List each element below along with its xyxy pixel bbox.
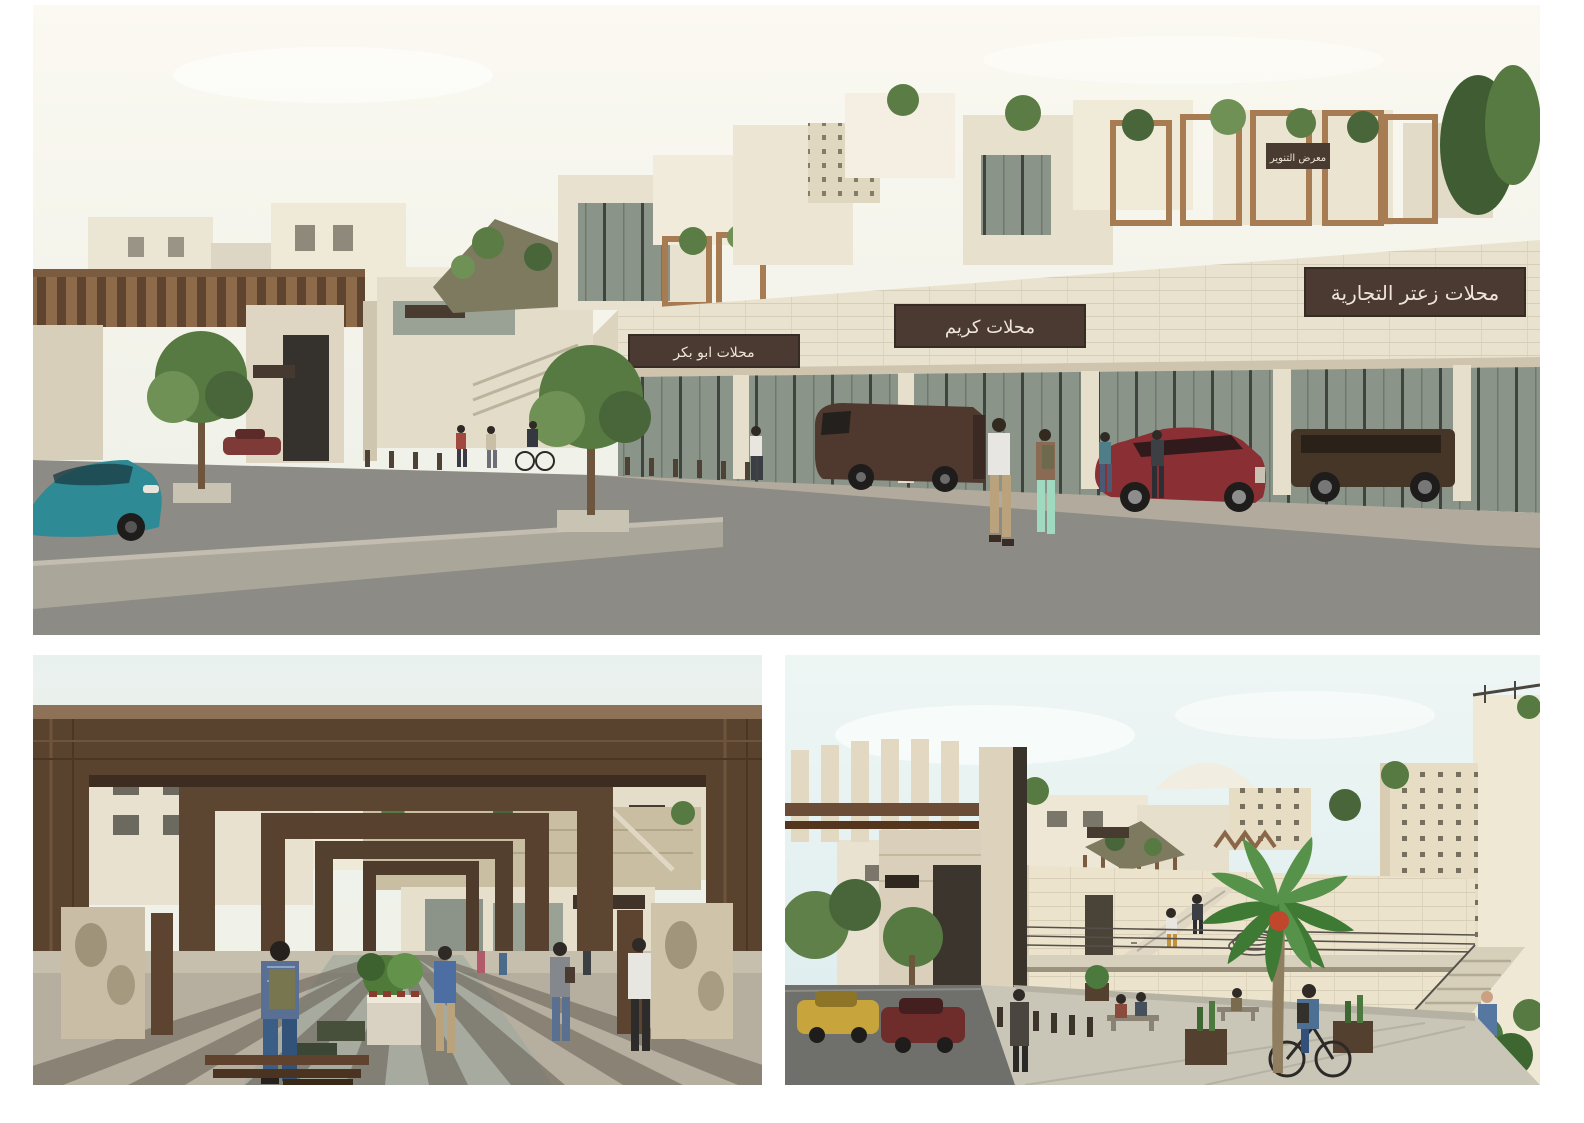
cloud	[983, 36, 1383, 84]
pergola-walkway-scene	[33, 655, 762, 1085]
shop-sign-right: محلات زعتر التجارية	[1305, 268, 1525, 316]
shop-sign-left-text: محلات ابو بكر	[672, 345, 754, 361]
cloud	[173, 47, 493, 103]
shop-sign-right-text: محلات زعتر التجارية	[1331, 281, 1499, 305]
brown-van	[815, 403, 985, 492]
palm-flowers	[1269, 911, 1289, 931]
panel-street-elevation: معرض التنوير محلات ابو بكر محلات كريم	[33, 5, 1540, 635]
shop-sign-center-text: محلات كريم	[945, 317, 1035, 338]
small-sign	[885, 875, 919, 888]
sunken-plaza-scene	[785, 655, 1540, 1085]
small-sign	[253, 365, 295, 378]
gallery-sign-text: معرض التنوير	[1269, 153, 1326, 164]
walkway-slab	[1025, 955, 1475, 967]
street-elevation-scene: معرض التنوير محلات ابو بكر محلات كريم	[33, 5, 1540, 635]
cloud	[1175, 691, 1435, 739]
panel-pergola-walkway	[33, 655, 762, 1085]
render-collage: معرض التنوير محلات ابو بكر محلات كريم	[0, 0, 1584, 1123]
panel-sunken-plaza	[785, 655, 1540, 1085]
gallery-sign: معرض التنوير	[1266, 143, 1330, 169]
shop-sign-center: محلات كريم	[895, 305, 1085, 347]
small-sign	[1087, 827, 1129, 838]
shop-sign-left: محلات ابو بكر	[629, 335, 799, 367]
